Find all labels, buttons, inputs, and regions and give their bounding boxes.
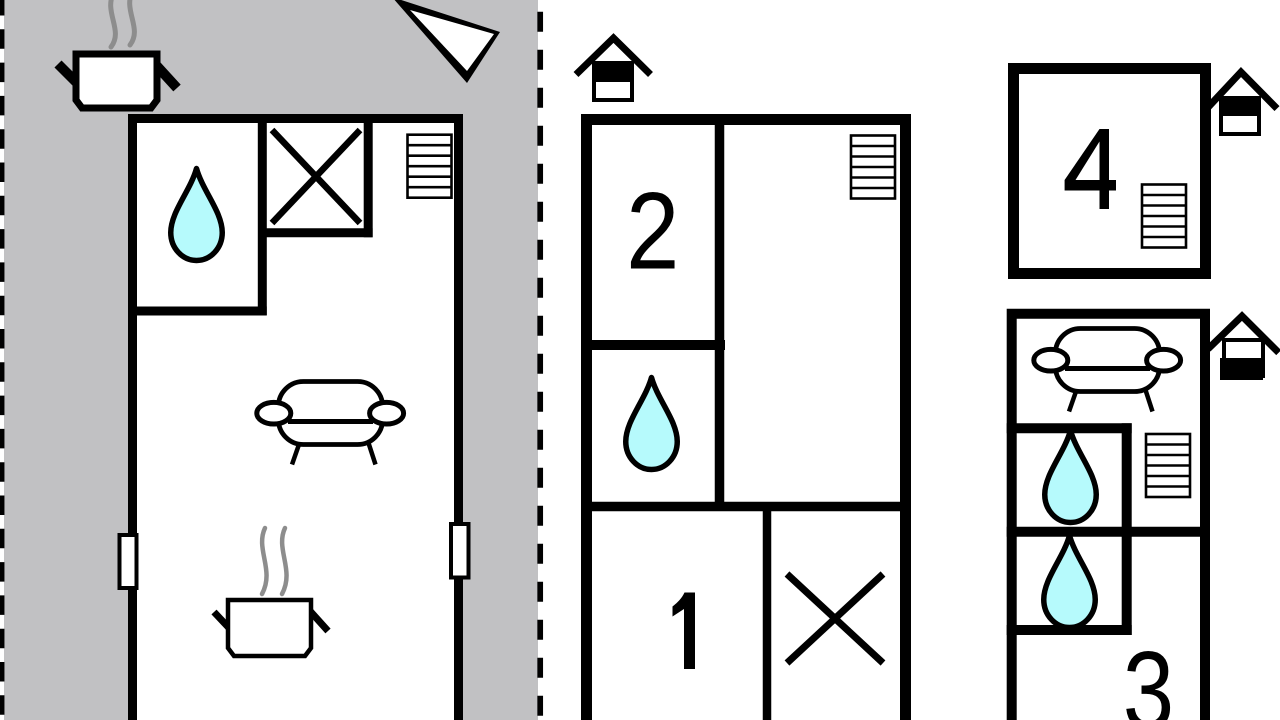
svg-text:2: 2 <box>626 169 679 292</box>
svg-text:3: 3 <box>1123 629 1174 720</box>
